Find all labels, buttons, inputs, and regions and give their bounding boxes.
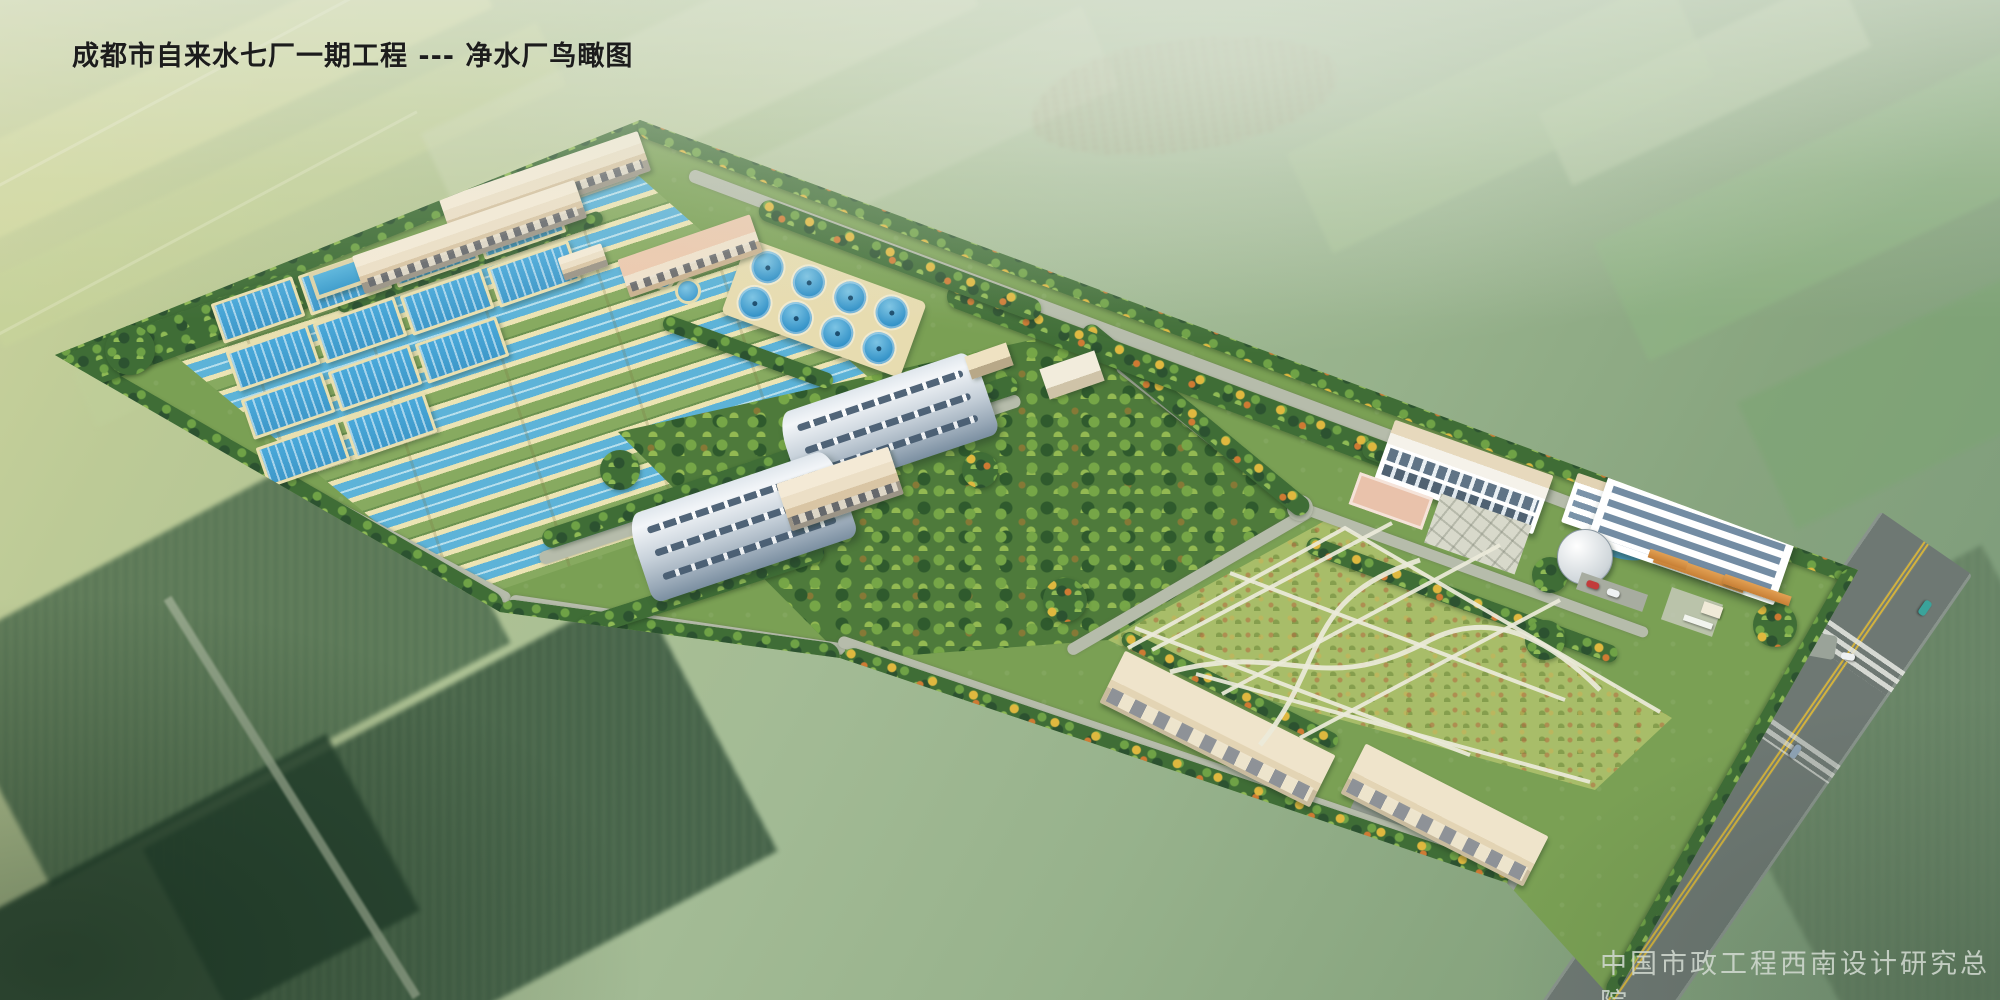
credit-text: 中国市政工程西南设计研究总院 (1600, 942, 2000, 1000)
lawn-paths (0, 0, 2000, 1000)
aerial-rendering-scene: 成都市自来水七厂一期工程 --- 净水厂鸟瞰图 中国市政工程西南设计研究总院 (0, 0, 2000, 1000)
page-title: 成都市自来水七厂一期工程 --- 净水厂鸟瞰图 (72, 34, 633, 73)
